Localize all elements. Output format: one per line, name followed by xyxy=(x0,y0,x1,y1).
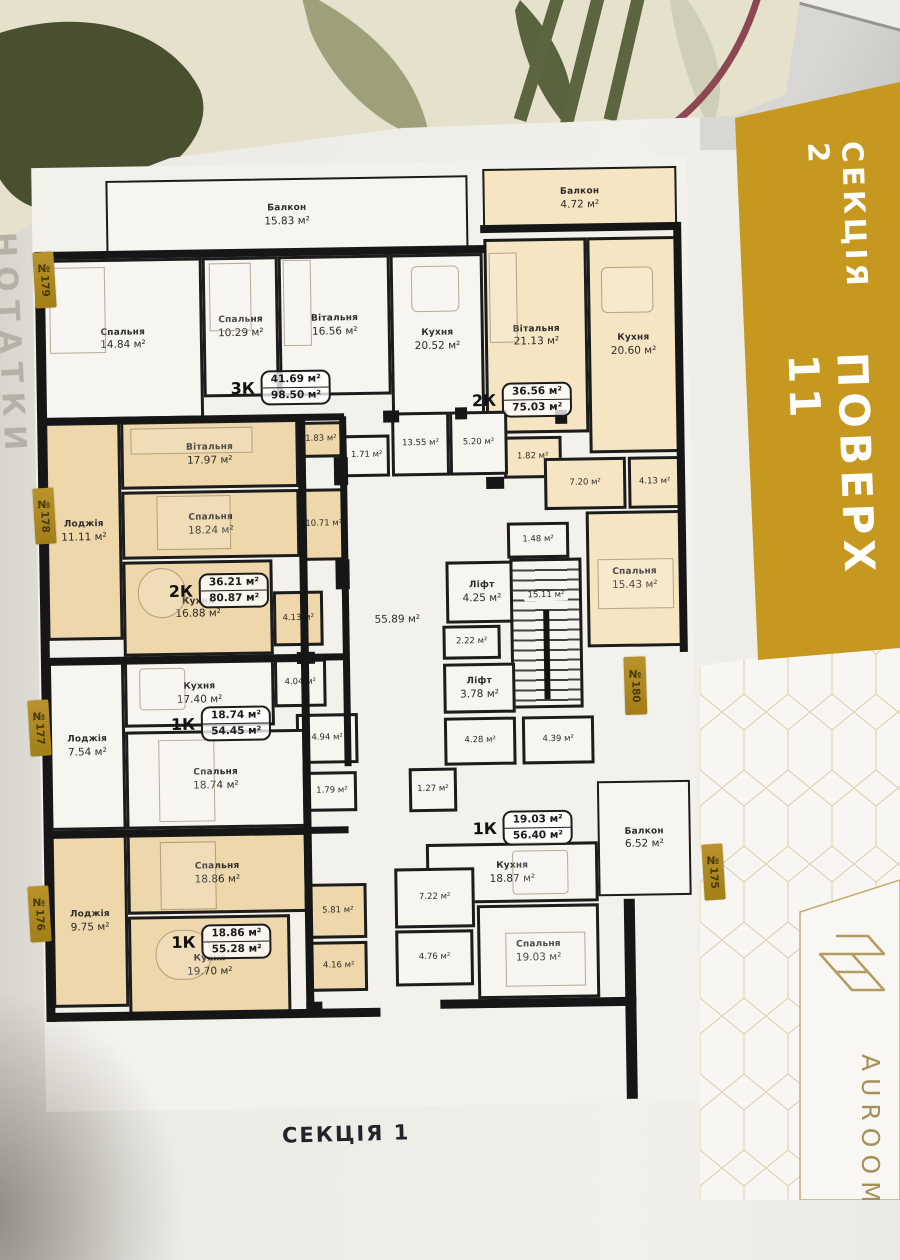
room-bath: 4.76 м² xyxy=(395,929,474,986)
room-hall: 4.39 м² xyxy=(522,715,595,764)
apartment-badge-1k-right: 1К 19.03 м²56.40 м² xyxy=(472,810,573,847)
room-hall: 1.48 м² xyxy=(507,522,570,559)
apartment-badge-1k-bottom: 1К 18.86 м²55.28 м² xyxy=(171,923,272,960)
room-balcony: Балкон4.72 м² xyxy=(482,166,677,231)
unit-tag-180: №180 xyxy=(623,656,647,715)
room-hall: 1.71 м² xyxy=(343,435,390,478)
room-bedroom: Спальня18.86 м² xyxy=(127,832,308,915)
room-hall: 1.79 м² xyxy=(307,771,358,812)
unit-tag-179: №179 xyxy=(32,251,56,308)
banner-floor: ПОВЕРХ 11 xyxy=(778,335,887,660)
room-lift: Ліфт3.78 м² xyxy=(443,663,516,714)
section-footer-label: СЕКЦІЯ 1 xyxy=(282,1120,411,1147)
room-bath: 4.13 м² xyxy=(628,456,682,509)
room-stairs: 15.11 м² xyxy=(509,558,583,709)
room-bath: 4.13 м² xyxy=(273,591,324,647)
room-bath: 5.20 м² xyxy=(449,411,508,476)
room-corridor: 55.89 м² xyxy=(346,482,448,759)
unit-tag-175: №175 xyxy=(701,843,725,900)
room-hall: 7.22 м² xyxy=(394,867,475,928)
apartment-badge-1k-mid: 1К 18.74 м²54.45 м² xyxy=(171,705,272,742)
apartment-badge-2k-right: 2К 36.56 м²75.03 м² xyxy=(472,382,573,419)
room-lift: Ліфт4.25 м² xyxy=(445,561,518,624)
room-bedroom: Спальня18.74 м² xyxy=(125,729,307,830)
side-banner: СЕКЦІЯ 2 ПОВЕРХ 11 xyxy=(732,80,900,670)
room-hall: 4.28 м² xyxy=(444,717,517,766)
unit-tag-176: №176 xyxy=(27,885,51,942)
unit-tag-178: №178 xyxy=(32,487,56,544)
room-hall: 2.22 м² xyxy=(442,625,501,660)
room-loggia: Лоджія7.54 м² xyxy=(48,662,127,831)
brand-graphic: AUROOM xyxy=(700,636,900,1200)
brand-name: AUROOM xyxy=(856,1054,885,1200)
apartment-badge-3k: 3К 41.69 м²98.50 м² xyxy=(230,369,331,406)
room-balcony: Балкон6.52 м² xyxy=(597,780,692,896)
room-hall: 1.27 м² xyxy=(409,768,458,813)
room-corridor: 13.55 м² xyxy=(391,412,450,477)
unit-tag-177: №177 xyxy=(27,699,51,756)
room-hall: 5.81 м² xyxy=(308,883,367,939)
table-shadow xyxy=(0,960,210,1260)
brand-panel: AUROOM xyxy=(700,636,900,1200)
margin-note: НОТАТКИ xyxy=(0,231,33,460)
room-balcony: Балкон15.83 м² xyxy=(105,175,468,255)
banner-text: СЕКЦІЯ 2 ПОВЕРХ 11 xyxy=(771,136,887,659)
room-hall: 7.20 м² xyxy=(544,457,627,510)
room-hall: 1.83 м² xyxy=(299,421,343,458)
room-loggia: Лоджія11.11 м² xyxy=(44,422,123,641)
apartment-badge-2k-left: 2К 36.21 м²80.87 м² xyxy=(169,572,270,609)
banner-section: СЕКЦІЯ 2 xyxy=(771,136,875,326)
room-bath: 4.16 м² xyxy=(309,941,368,992)
